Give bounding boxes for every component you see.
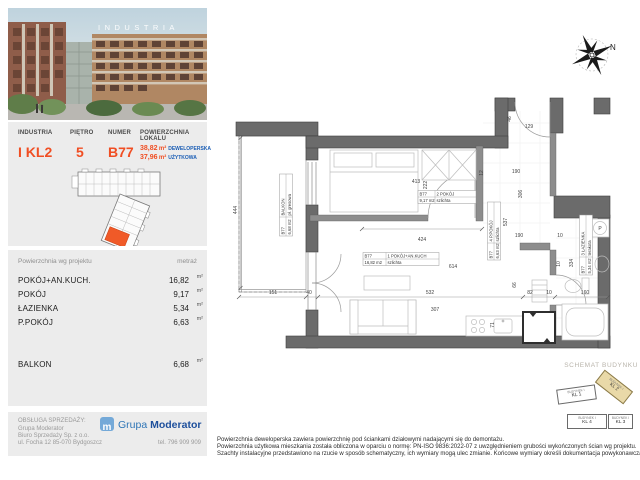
- room-label-box: B771 POKÓJ+AN.KUCH16,82 m2szlichta: [363, 253, 439, 266]
- room-area: 16,82 m2: [365, 260, 383, 265]
- area-row-unit: m²: [197, 358, 203, 364]
- area-row-balcony: BALKON 6,68 m²: [8, 358, 207, 372]
- area-table-row: POKÓJ9,17m²: [8, 288, 207, 302]
- area-table-row: P.POKÓJ6,63m²: [8, 316, 207, 330]
- room-unit: B77: [489, 250, 494, 258]
- area-row-unit: m²: [197, 316, 203, 322]
- area-developer-unit: m²: [159, 146, 166, 152]
- dimension-label: 66: [512, 282, 518, 288]
- room-label-box: B774 P.POKÓJ6,63 m2szlichta: [488, 202, 501, 260]
- dimension-label: 10: [557, 233, 563, 239]
- building-schematic: BUDYNEK I KL 1 BUDYNEK I KL 2 BUDYNEK I …: [552, 382, 640, 438]
- area-table-rows: POKÓJ+AN.KUCH.16,82m²POKÓJ9,17m²ŁAZIENKA…: [8, 274, 207, 330]
- room-name: 1 POKÓJ+AN.KUCH: [388, 254, 427, 259]
- area-row-value: 5,34: [173, 304, 189, 313]
- dimension-label: 444: [233, 206, 239, 215]
- room-label-box: B772 POKÓJ9,17 m2szlichta: [418, 191, 476, 204]
- schemat-title: SCHEMAT BUDYNKU: [440, 362, 638, 369]
- area-table-row: POKÓJ+AN.KUCH.16,82m²: [8, 274, 207, 288]
- room-floor: pł. gresowa: [287, 193, 292, 215]
- dimension-label: 10: [556, 261, 562, 267]
- room-unit: B77: [365, 254, 373, 259]
- photo-industria-text: INDUSTRIA: [98, 23, 179, 32]
- logo-moderator: Moderator: [150, 419, 201, 431]
- dimension-label: 12: [479, 170, 485, 176]
- area-usable-label: UŻYTKOWA: [168, 155, 197, 161]
- area-row-label: BALKON: [18, 360, 52, 369]
- area-developer-value: 38,82: [140, 145, 158, 152]
- area-row-value: 16,82: [169, 276, 189, 285]
- room-label-box: B77BALKON6,68 m2pł. gresowa: [280, 174, 293, 236]
- room-name: 4 P.POKÓJ: [489, 220, 494, 241]
- sales-label: OBSŁUGA SPRZEDAŻY:: [18, 418, 86, 425]
- compass-north-label: N: [610, 43, 616, 52]
- dimension-label: 306: [518, 190, 524, 199]
- dimension-label: 190: [515, 233, 524, 239]
- area-table-col2: metraż: [177, 258, 197, 265]
- unit-building: I KL2: [18, 144, 52, 160]
- dimension-label: 10: [546, 290, 552, 296]
- room-floor: szlichta: [437, 198, 452, 203]
- moderator-logo-icon: m: [100, 417, 114, 431]
- dimension-label: 532: [426, 290, 435, 296]
- area-row-label: P.POKÓJ: [18, 318, 53, 327]
- header-pietro: PIĘTRO: [70, 130, 94, 136]
- room-label-boxes: B772 POKÓJ9,17 m2szlichtaB771 POKÓJ+AN.K…: [280, 174, 593, 275]
- area-developer-label: DEWELOPERSKA: [168, 146, 211, 152]
- area-table-row: ŁAZIENKA5,34m²: [8, 302, 207, 316]
- logo-m-letter: m: [103, 422, 112, 433]
- dimension-label: 46: [507, 116, 513, 122]
- room-unit: B77: [581, 265, 586, 273]
- unit-number: B77: [108, 144, 134, 160]
- unit-info-card: INDUSTRIA PIĘTRO NUMER POWIERZCHNIA LOKA…: [8, 122, 207, 246]
- floor-overview-miniplan: [60, 168, 164, 246]
- area-usable-line: 37,96 m² UŻYTKOWA: [140, 153, 197, 163]
- schematic-kl: KL 3: [609, 420, 632, 426]
- schematic-block-kl1: BUDYNEK I KL 1: [556, 384, 597, 404]
- disclaimer-text: Powierzchnia deweloperska zawiera powier…: [217, 437, 640, 459]
- room-area: 5,34 m2: [587, 258, 592, 274]
- room-unit: B77: [281, 226, 286, 234]
- sales-phone: tel. 796 909 909: [158, 440, 201, 447]
- moderator-logo-text: Grupa Moderator: [118, 419, 201, 431]
- room-unit: B77: [420, 192, 428, 197]
- dimension-label: 222: [423, 181, 429, 190]
- building-render-image: INDUSTRIA: [8, 8, 207, 120]
- dimension-label: 307: [431, 307, 440, 313]
- dimension-label: 151: [269, 290, 278, 296]
- area-row-label: POKÓJ: [18, 290, 46, 299]
- unit-floor: 5: [76, 144, 84, 160]
- area-row-value: 6,68: [173, 360, 189, 369]
- header-industria: INDUSTRIA: [18, 130, 52, 136]
- floor-plan: 4132221242461453215140444190461293065371…: [230, 88, 615, 360]
- dimension-label: 40: [306, 290, 312, 296]
- area-row-label: ŁAZIENKA: [18, 304, 58, 313]
- schematic-block-kl3: BUDYNEK I KL 3: [608, 414, 633, 429]
- disclaimer-line-2: Powierzchnia użytkowa mieszkania została…: [217, 444, 640, 451]
- schematic-block-kl2-highlighted: BUDYNEK I KL 2: [595, 370, 633, 405]
- dimension-label: 334: [569, 259, 575, 268]
- area-table-card: Powierzchnia wg projektu metraż POKÓJ+AN…: [8, 250, 207, 406]
- dimension-label: 413: [412, 179, 421, 185]
- disclaimer-line-3: Szachty instalacyjne przedstawiono na rz…: [217, 451, 640, 458]
- sales-contact-card: OBSŁUGA SPRZEDAŻY: Grupa Moderator Biuro…: [8, 412, 207, 456]
- room-name: BALKON: [281, 199, 286, 216]
- dimension-label: 424: [418, 237, 427, 243]
- area-row-label: POKÓJ+AN.KUCH.: [18, 276, 91, 285]
- area-table-col1: Powierzchnia wg projektu: [18, 258, 92, 265]
- dimension-label: 71: [490, 322, 496, 328]
- area-row-value: 9,17: [173, 290, 189, 299]
- area-row-unit: m²: [197, 288, 203, 294]
- area-row-value: 6,63: [173, 318, 189, 327]
- schematic-block-kl4: BUDYNEK I KL 4: [567, 414, 607, 429]
- compass-rose-icon: N: [565, 25, 635, 95]
- logo-grupa: Grupa: [118, 419, 147, 431]
- room-floor: terakota: [587, 240, 592, 256]
- room-area: 6,63 m2: [495, 243, 500, 259]
- area-row-unit: m²: [197, 302, 203, 308]
- area-usable-value: 37,96: [140, 154, 158, 161]
- room-name: 2 POKÓJ: [437, 192, 455, 197]
- room-name: 3 ŁAZIENKA: [581, 232, 586, 256]
- schematic-kl: KL 4: [568, 420, 606, 426]
- header-numer: NUMER: [108, 130, 131, 136]
- sales-address: ul. Focha 12 85-070 Bydgoszcz: [18, 440, 102, 447]
- room-label-box: B773 ŁAZIENKA5,34 m2terakota: [580, 215, 593, 275]
- room-floor: szlichta: [495, 227, 500, 242]
- dimension-label: 160: [581, 290, 590, 296]
- apartment-flyer: INDUSTRIA INDUSTRIA PIĘTRO NUMER POWIERZ…: [0, 0, 640, 480]
- disclaimer-line-1: Powierzchnia deweloperska zawiera powier…: [217, 437, 640, 444]
- dimension-label: 537: [503, 218, 509, 227]
- installation-shaft: [523, 312, 555, 343]
- header-powierzchnia: POWIERZCHNIA LOKALU: [140, 130, 207, 142]
- dimension-label: 82: [527, 290, 533, 296]
- wall: [236, 122, 318, 136]
- room-area: 6,68 m2: [287, 219, 292, 235]
- dimension-label: 190: [512, 169, 521, 175]
- room-area: 9,17 m2: [420, 198, 436, 203]
- dimension-label: 129: [525, 124, 534, 130]
- area-row-unit: m²: [197, 274, 203, 280]
- building-photo: INDUSTRIA: [8, 8, 207, 120]
- area-usable-unit: m²: [159, 155, 166, 161]
- room-floor: szlichta: [388, 260, 403, 265]
- dimension-label: 614: [449, 264, 458, 270]
